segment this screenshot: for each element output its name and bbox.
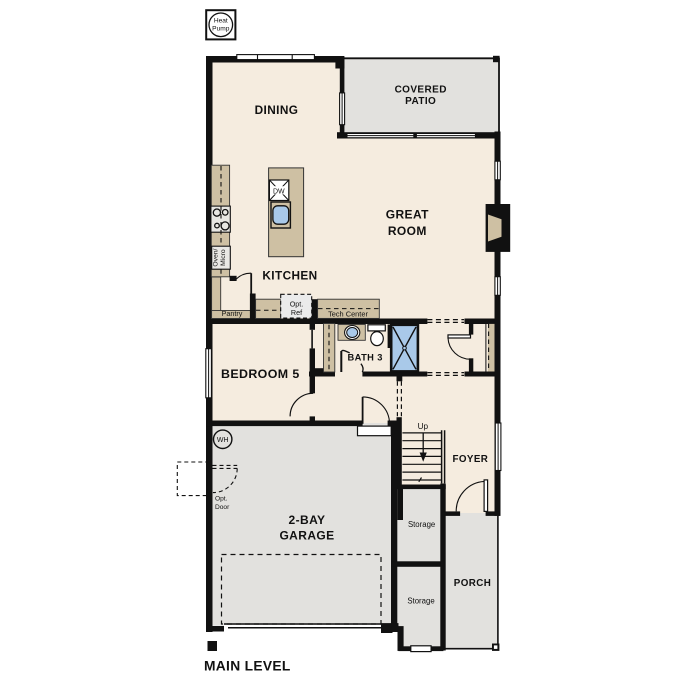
svg-text:COVERED: COVERED bbox=[395, 84, 447, 95]
svg-text:2-BAY: 2-BAY bbox=[289, 513, 326, 527]
svg-text:WH: WH bbox=[217, 437, 229, 444]
svg-text:Storage: Storage bbox=[408, 520, 435, 529]
svg-text:PORCH: PORCH bbox=[454, 578, 491, 589]
svg-text:Pump: Pump bbox=[212, 26, 230, 33]
svg-text:Heat: Heat bbox=[214, 18, 228, 25]
svg-text:Door: Door bbox=[215, 504, 230, 511]
svg-text:PATIO: PATIO bbox=[405, 96, 436, 107]
svg-text:KITCHEN: KITCHEN bbox=[262, 268, 317, 282]
svg-text:BATH 3: BATH 3 bbox=[348, 352, 383, 362]
svg-text:Micro: Micro bbox=[220, 249, 227, 266]
svg-text:DINING: DINING bbox=[255, 103, 299, 117]
svg-text:MAIN LEVEL: MAIN LEVEL bbox=[204, 658, 291, 673]
svg-text:GREAT: GREAT bbox=[386, 208, 429, 222]
svg-text:Up: Up bbox=[418, 422, 429, 431]
svg-text:Storage: Storage bbox=[407, 597, 434, 606]
svg-text:ROOM: ROOM bbox=[388, 224, 427, 238]
svg-text:DW: DW bbox=[273, 188, 285, 195]
svg-text:Opt.: Opt. bbox=[215, 496, 228, 503]
svg-text:BEDROOM 5: BEDROOM 5 bbox=[221, 367, 300, 381]
svg-text:FOYER: FOYER bbox=[453, 454, 489, 465]
svg-text:Ref: Ref bbox=[291, 308, 302, 317]
svg-text:Tech Center: Tech Center bbox=[328, 310, 368, 319]
svg-text:Pantry: Pantry bbox=[222, 309, 243, 318]
svg-text:GARAGE: GARAGE bbox=[279, 528, 334, 542]
svg-text:Oven/: Oven/ bbox=[213, 248, 220, 266]
